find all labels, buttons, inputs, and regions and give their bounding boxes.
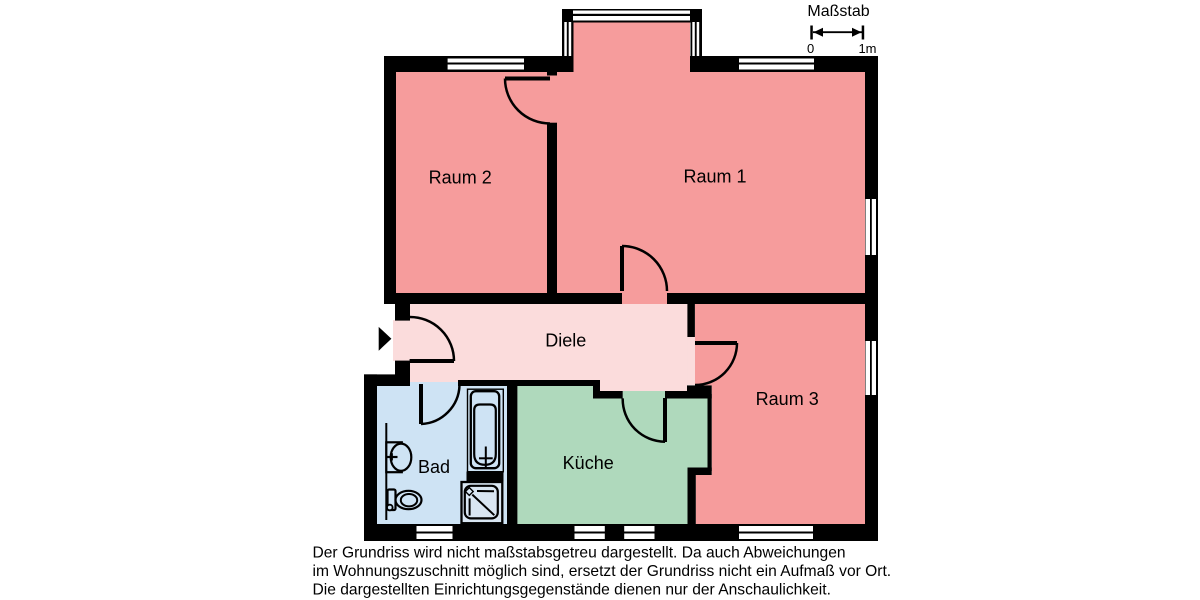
svg-text:Der Grundriss wird nicht maßst: Der Grundriss wird nicht maßstabsgetreu … [313, 545, 846, 562]
svg-text:1m: 1m [858, 41, 876, 56]
svg-text:Maßstab: Maßstab [807, 3, 869, 20]
svg-text:Raum 2: Raum 2 [429, 167, 492, 187]
svg-text:Bad: Bad [418, 457, 450, 477]
svg-text:Diele: Diele [545, 330, 586, 350]
svg-text:im Wohnungszuschnitt möglich s: im Wohnungszuschnitt möglich sind, erset… [313, 563, 892, 580]
svg-text:0: 0 [807, 41, 814, 56]
svg-text:Die dargestellten Einrichtungs: Die dargestellten Einrichtungsgegenständ… [313, 582, 831, 599]
svg-text:Raum 3: Raum 3 [756, 389, 819, 409]
svg-text:Raum 1: Raum 1 [683, 167, 746, 187]
svg-text:Küche: Küche [563, 453, 614, 473]
